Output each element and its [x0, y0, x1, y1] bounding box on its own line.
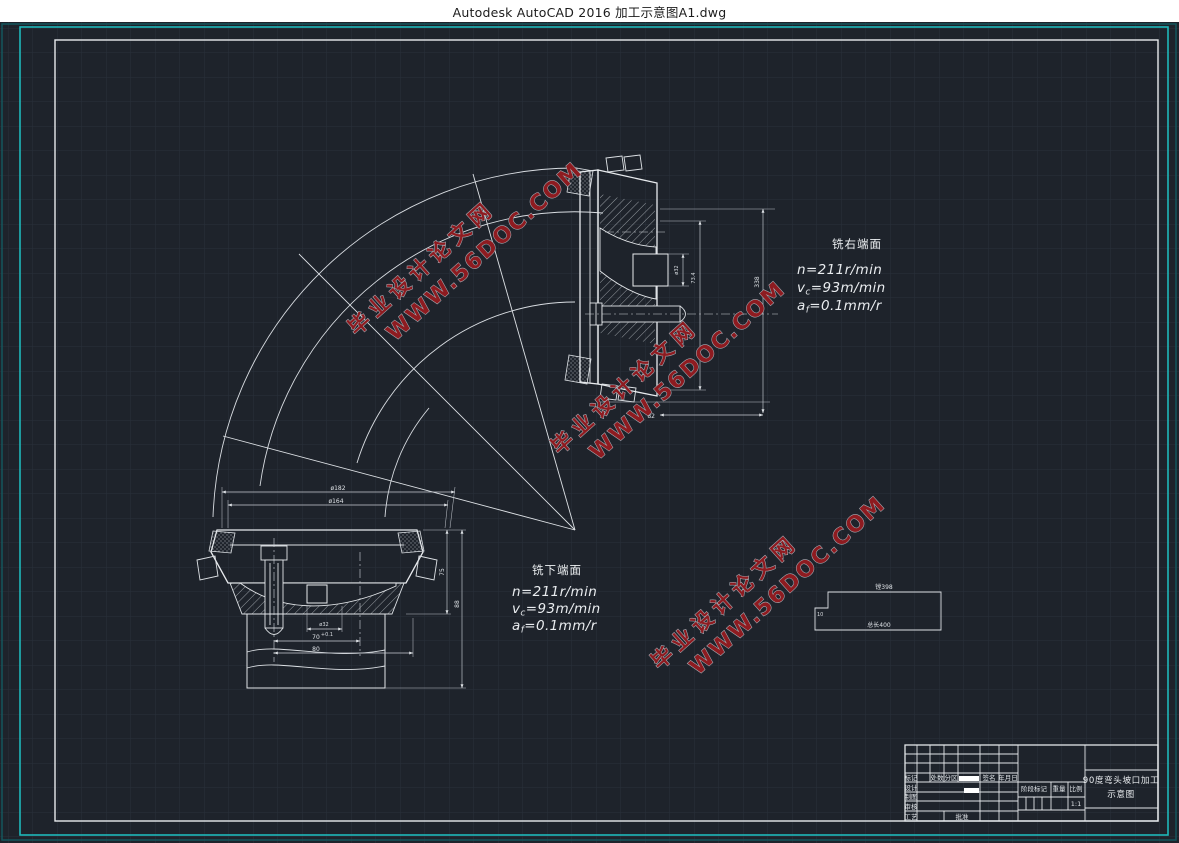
drawing-title-line2: 示意图: [1107, 788, 1135, 800]
dim-lower-base: 80: [312, 646, 320, 653]
drawing-title-line1: 90度弯头坡口加工: [1083, 774, 1160, 786]
clamp-corner-hatch: [398, 531, 424, 553]
cutter-block: [307, 585, 327, 603]
tb-scale: 比例: [1070, 784, 1083, 793]
drawing-svg: 338 ø32 73.4 82 ø182 ø164: [0, 22, 1179, 843]
drawing-canvas[interactable]: 338 ø32 73.4 82 ø182 ø164: [0, 22, 1179, 843]
boring-left-label: 10: [817, 612, 823, 618]
dim-lower-outer: ø182: [330, 485, 345, 492]
dim-right-depth: 73.4: [691, 272, 697, 283]
tb-zone: 分区: [945, 773, 959, 782]
param-vc: vc=93m/min: [797, 280, 886, 298]
tb-scale-value: 1:1: [1071, 800, 1081, 808]
dim-lower-h1: 75: [439, 568, 446, 576]
dim-lower-len-tol: +0.1: [321, 632, 333, 638]
dim-lower-bore: ø32: [319, 622, 328, 628]
boring-bottom-label: 总长400: [867, 621, 891, 629]
tb-approve: 批准: [956, 812, 970, 821]
param-vc: vc=93m/min: [512, 601, 601, 619]
tb-stage: 阶段标记: [1021, 784, 1048, 793]
redacted-name-box: [964, 788, 979, 793]
clamp-corner-hatch: [565, 355, 591, 384]
param-n: n=211r/min: [797, 262, 882, 278]
tb-check: 审核: [905, 802, 919, 811]
dim-right-tool: ø32: [674, 265, 680, 274]
tb-sign: 签名: [983, 773, 996, 782]
boring-top-label: 镗398: [875, 583, 893, 591]
cutter-block: [633, 254, 668, 286]
autocad-window: Autodesk AutoCAD 2016 加工示意图A1.dwg: [0, 0, 1179, 843]
dim-lower-h2: 88: [454, 600, 461, 608]
annotation-title: 铣右端面: [832, 237, 882, 251]
tb-date: 年月日: [998, 773, 1018, 782]
param-af: af=0.1mm/r: [512, 618, 598, 636]
clamp-corner-hatch: [209, 531, 235, 553]
param-n: n=211r/min: [512, 584, 597, 600]
tb-design: 设计: [905, 783, 919, 792]
dim-lower-pitch: ø164: [328, 498, 343, 505]
tb-draft: 制图: [905, 792, 918, 801]
dim-lower-len: 70: [312, 634, 320, 641]
tb-process: 工艺: [905, 813, 919, 821]
window-title: Autodesk AutoCAD 2016 加工示意图A1.dwg: [453, 2, 727, 21]
window-titlebar[interactable]: Autodesk AutoCAD 2016 加工示意图A1.dwg: [0, 0, 1179, 22]
annotation-title: 铣下端面: [532, 563, 582, 577]
tb-mark: 标记: [905, 773, 919, 782]
param-af: af=0.1mm/r: [797, 298, 883, 316]
tb-count: 处数: [931, 773, 945, 782]
redacted-name-box: [959, 776, 979, 781]
dim-right-height: 338: [754, 276, 761, 288]
tb-weight: 重量: [1053, 785, 1067, 793]
